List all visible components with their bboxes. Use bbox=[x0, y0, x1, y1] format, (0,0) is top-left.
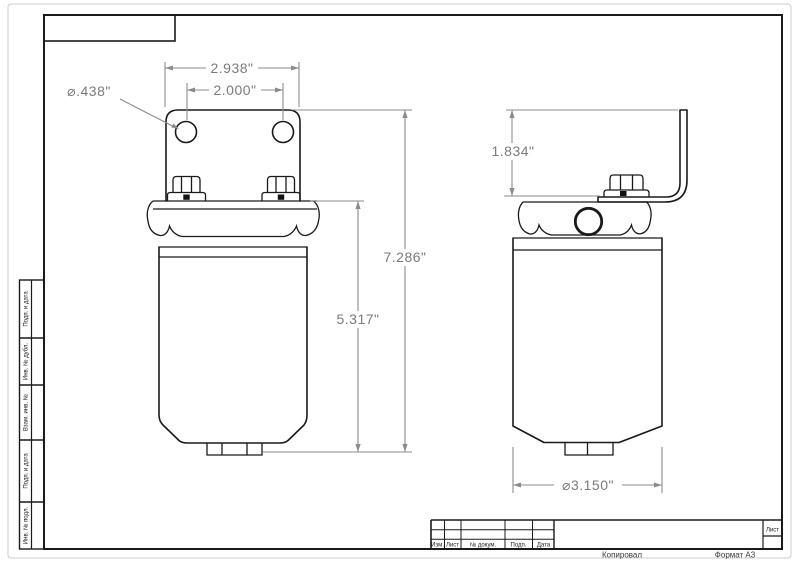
inlet-port bbox=[575, 208, 601, 234]
drawing-sheet: Подп. и дата Инв. № дубл. Взам. инв. № П… bbox=[0, 0, 800, 565]
paper-edge bbox=[8, 4, 791, 558]
dimension-label: 2.938" bbox=[210, 60, 253, 76]
stamp-cell-label: Взам. инв. № bbox=[23, 394, 30, 431]
revision-col-label: Дата bbox=[537, 543, 551, 549]
revision-col-label: № докум. bbox=[470, 542, 497, 549]
dimension-label: ⌀3.150" bbox=[562, 477, 614, 493]
footer-format-label: Формат А3 bbox=[715, 551, 756, 560]
revision-col-label: Лист bbox=[446, 543, 459, 549]
stamp-cell-label: Инв. № дубл. bbox=[23, 343, 30, 380]
dimension-label: 5.317" bbox=[336, 311, 379, 327]
dimension-label: 1.834" bbox=[491, 143, 534, 159]
stamp-cell-label: Инв. № подл. bbox=[23, 506, 30, 544]
dimension-label: ⌀.438" bbox=[67, 83, 111, 99]
dimension-label: 2.000" bbox=[213, 82, 256, 98]
drawing-canvas: Подп. и дата Инв. № дубл. Взам. инв. № П… bbox=[0, 0, 800, 565]
bolt-notch bbox=[278, 195, 284, 200]
stamp-cell-label: Подп. и дата bbox=[24, 453, 30, 489]
revision-col-label: Изм. bbox=[431, 543, 444, 549]
footer-copied-label: Копировал bbox=[602, 551, 642, 560]
revision-col-label: Подп. bbox=[511, 543, 527, 549]
stamp-cell-label: Подп. и дата bbox=[24, 291, 30, 327]
bolt-notch bbox=[183, 195, 189, 200]
dimension-label: 7.286" bbox=[383, 249, 426, 265]
bolt-notch bbox=[620, 191, 627, 196]
sheet-label: Лист bbox=[766, 528, 779, 534]
